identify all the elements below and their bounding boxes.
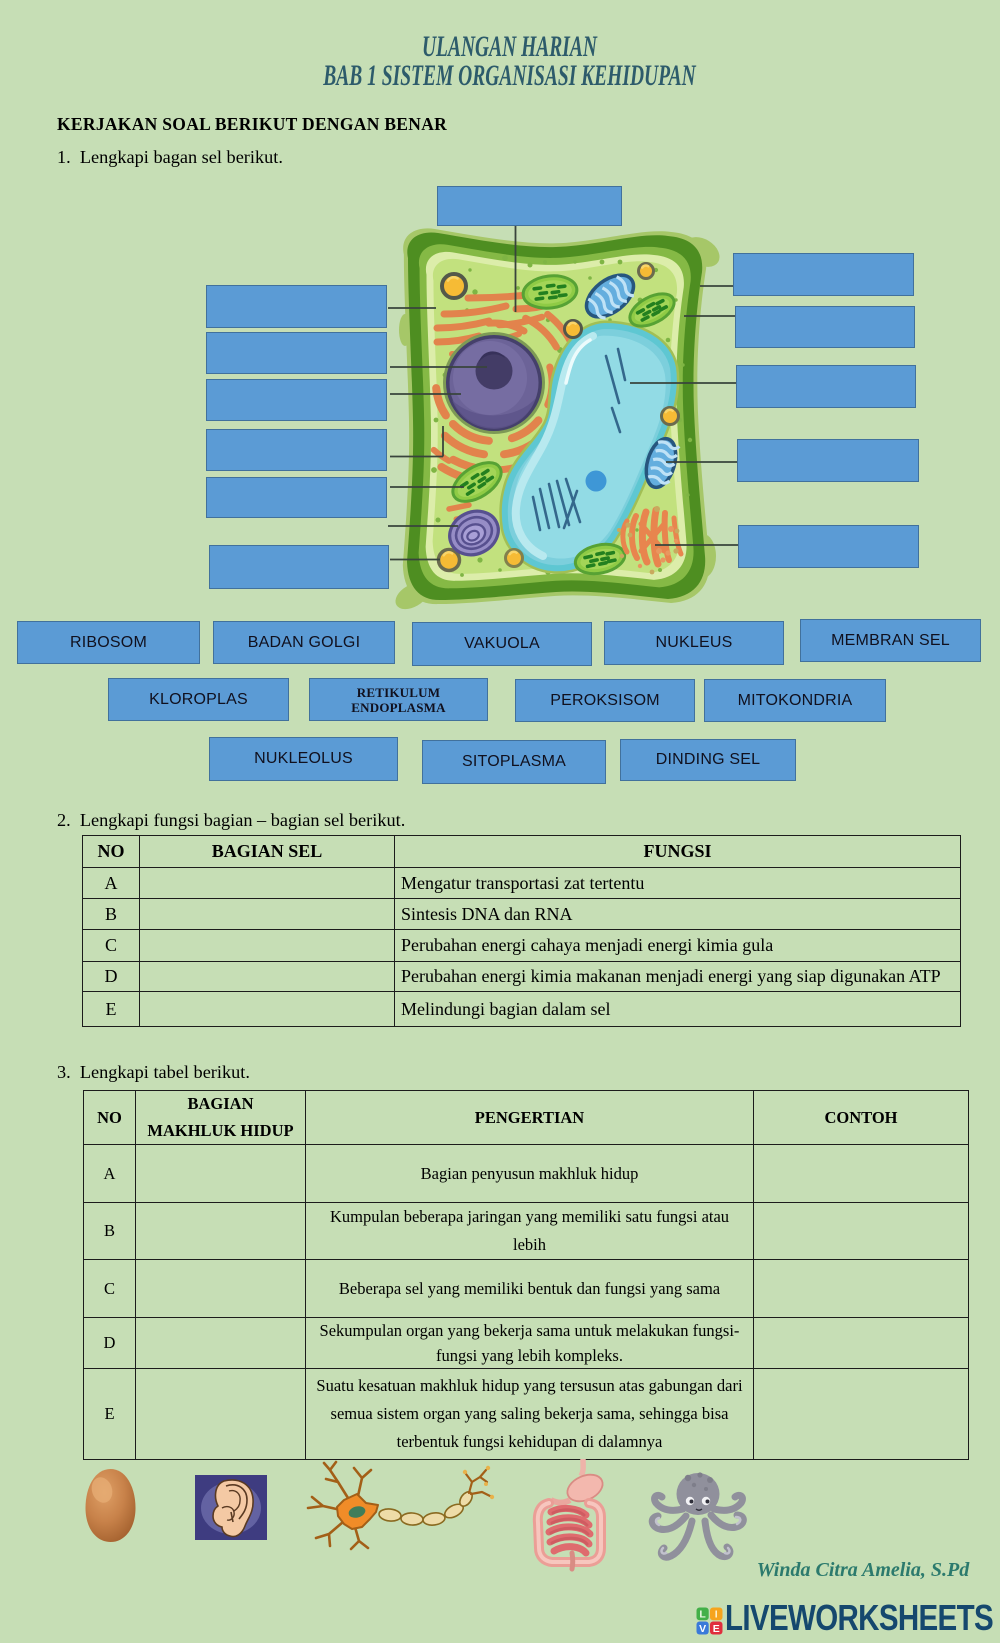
svg-text:I: I: [715, 1609, 718, 1621]
svg-text:V: V: [699, 1623, 706, 1635]
svg-text:L: L: [699, 1609, 706, 1621]
svg-text:E: E: [713, 1623, 720, 1635]
